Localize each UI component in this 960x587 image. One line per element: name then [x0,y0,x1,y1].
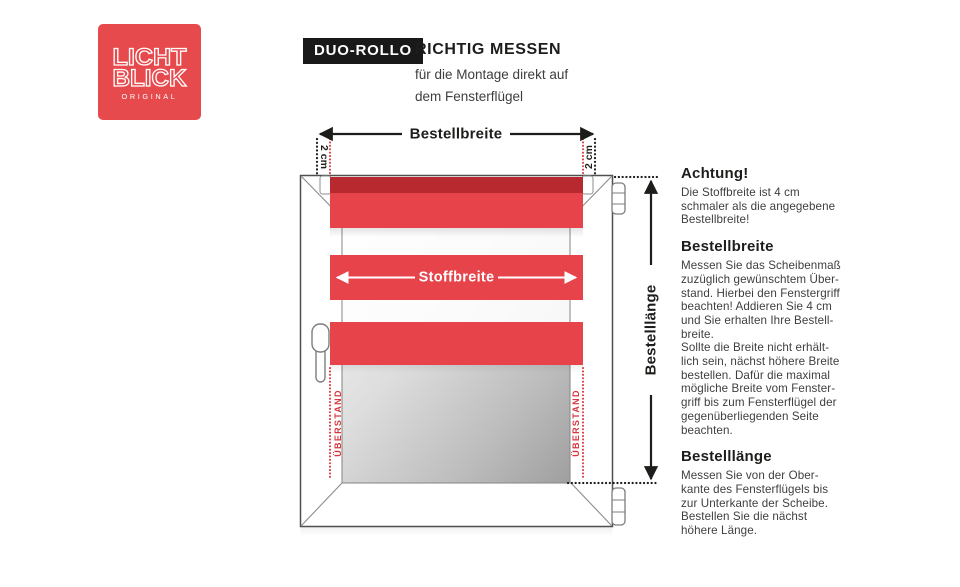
logo-line2: BLICK [113,65,188,92]
section-bestelllaenge-heading: Bestelllänge [681,447,871,466]
section-bestellbreite-heading: Bestellbreite [681,237,871,256]
fabric-shadow-1 [330,228,583,237]
hinge-top-icon [612,183,625,214]
ueberstand-right-label: ÜBERSTAND [571,389,581,457]
roller-bracket-right [582,176,593,194]
section-bestellbreite-body: Messen Sie das Scheibenmaß zuzüglich gew… [681,259,871,437]
section-achtung-heading: Achtung! [681,164,871,183]
page-title: RICHTIG MESSEN [415,41,561,59]
page: LICHT BLICK ORIGINAL DUO-ROLLO RICHTIG M… [0,0,960,587]
logo-subtitle: ORIGINAL [122,94,178,101]
instructions-panel: Achtung! Die Stoffbreite ist 4 cm schmal… [681,164,871,538]
bestelllaenge-label: Bestelllänge [643,285,660,376]
page-subtitle: für die Montage direkt auf dem Fensterfl… [415,64,568,107]
section-bestelllaenge: Bestelllänge Messen Sie von der Ober- ka… [681,447,871,538]
hinge-bottom-icon [612,488,625,525]
bestellbreite-label: Bestellbreite [410,126,503,143]
product-badge: DUO-ROLLO [303,38,423,64]
bestellbreite-dimension: Bestellbreite [320,126,593,143]
section-bestelllaenge-body: Messen Sie von der Ober- kante des Fenst… [681,469,871,538]
section-achtung-body: Die Stoffbreite ist 4 cm schmaler als di… [681,186,871,227]
lichtblick-logo: LICHT BLICK ORIGINAL [98,24,201,120]
two-cm-right-label: 2 cm [583,145,595,169]
roller-tube [330,177,583,193]
stoffbreite-label: Stoffbreite [419,270,495,286]
fabric-shadow-3 [330,365,583,373]
roller-bracket-left [320,176,331,194]
frame-shadow [301,527,613,536]
section-bestellbreite: Bestellbreite Messen Sie das Scheibenmaß… [681,237,871,437]
section-achtung: Achtung! Die Stoffbreite ist 4 cm schmal… [681,164,871,227]
fabric-stripe-3 [330,322,583,365]
bestelllaenge-dimension: Bestelllänge [643,181,660,479]
ueberstand-left-label: ÜBERSTAND [333,389,343,457]
fabric-stripe-1 [330,193,583,228]
measurement-diagram: Stoffbreite ÜBERSTAND ÜBERSTAND Bestellb… [280,120,680,545]
two-cm-left-label: 2 cm [318,145,330,169]
